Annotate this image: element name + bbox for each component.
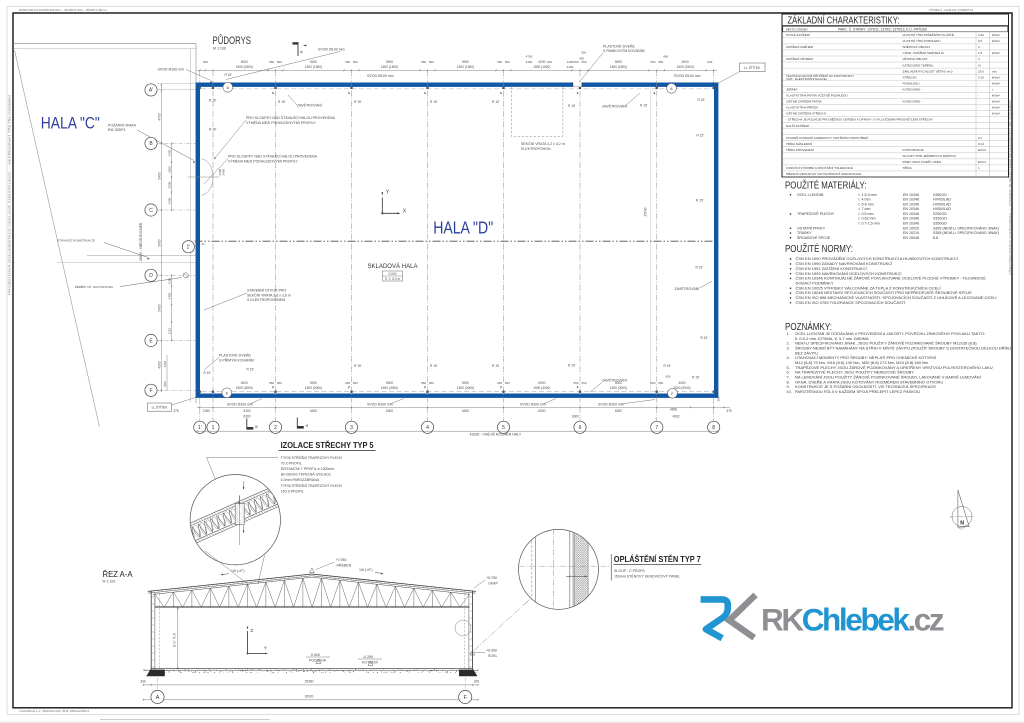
svg-text:kN/m²: kN/m² — [992, 100, 1000, 104]
svg-text:ŘEZ A-A: ŘEZ A-A — [103, 569, 133, 579]
svg-text:+0.300: +0.300 — [486, 648, 497, 652]
svg-text:VÝMĚNA MEZI PODHLEDOVÝMI PROFI: VÝMĚNA MEZI PODHLEDOVÝMI PROFILY — [246, 120, 316, 125]
svg-text:EN 10346: EN 10346 — [903, 193, 919, 197]
svg-text:375: 375 — [726, 409, 732, 413]
svg-text:26020: 26020 — [305, 694, 314, 698]
svg-text:-: - — [978, 100, 979, 104]
svg-text:t. 7 mm: t. 7 mm — [859, 207, 871, 211]
svg-text:ZÁKLADNÍ CHARAKTERISTIKY:: ZÁKLADNÍ CHARAKTERISTIKY: — [788, 13, 900, 26]
svg-text:OPLÁŠTĚNÍ STĚN TYP 7: OPLÁŠTĚNÍ STĚN TYP 7 — [614, 553, 701, 564]
svg-text:t. 5-6 mm: t. 5-6 mm — [859, 202, 874, 206]
svg-text:M 1:100: M 1:100 — [213, 47, 226, 51]
svg-text:POUŽITÉ MATERIÁLY:: POUŽITÉ MATERIÁLY: — [785, 178, 867, 191]
svg-text:FUNKČNÍ VÝROBNÍ A MONTÁŽNÍ TOL: FUNKČNÍ VÝROBNÍ A MONTÁŽNÍ TOLERANCE — [786, 165, 853, 170]
svg-text:NOSNÁ OCELOVÁ KONSTRUKCE HALY: NOSNÁ OCELOVÁ KONSTRUKCE HALY — SKLADOVÁ… — [19, 9, 107, 12]
svg-text:PRO SLOUPKY NAD STÁVAJÍCÍ HALO: PRO SLOUPKY NAD STÁVAJÍCÍ HALOU PROVEDEN… — [246, 116, 336, 120]
svg-text:SLOUP - C PROFIL: SLOUP - C PROFIL — [614, 569, 645, 573]
svg-text:650: 650 — [421, 60, 426, 64]
svg-text:PLASTOVÉ DVEŘE: PLASTOVÉ DVEŘE — [603, 43, 636, 48]
svg-text:70 Z-PROFIL: 70 Z-PROFIL — [281, 462, 302, 466]
svg-text:R 15': R 15' — [697, 134, 705, 138]
svg-text:0.000: 0.000 — [389, 272, 397, 276]
svg-text:D: D — [149, 273, 153, 279]
svg-text:5000: 5000 — [310, 381, 317, 385]
svg-text:0.3mm PAROZÁBRANA: 0.3mm PAROZÁBRANA — [281, 478, 320, 482]
svg-text:25360: 25360 — [305, 680, 314, 684]
svg-text:EW 30DP1: EW 30DP1 — [108, 128, 126, 132]
svg-text:5000: 5000 — [386, 60, 393, 64]
svg-text:EN 10219: EN 10219 — [903, 231, 919, 235]
svg-text:5000: 5000 — [386, 381, 393, 385]
svg-text:S.V.: 5 m: S.V.: 5 m — [172, 633, 176, 647]
svg-text:4300: 4300 — [526, 60, 533, 64]
svg-text:330: 330 — [140, 680, 146, 684]
svg-text:5400: 5400 — [157, 304, 161, 311]
svg-text:4000: 4000 — [241, 381, 248, 385]
svg-text:PŘESNÁ ODOLNOST VIZ TECHNICKÁ: PŘESNÁ ODOLNOST VIZ TECHNICKÁ SPECIFIKAC… — [786, 171, 861, 176]
svg-text:650: 650 — [505, 381, 510, 385]
svg-text:ZATÍŽENÍ VĚTREM: ZATÍŽENÍ VĚTREM — [786, 56, 813, 61]
svg-text:650: 650 — [497, 381, 502, 385]
svg-text:SVOD Ø100 mm: SVOD Ø100 mm — [367, 74, 394, 78]
svg-text:3400: 3400 — [222, 168, 226, 175]
svg-text:VĚTRNÁ OBLAST: VĚTRNÁ OBLAST — [903, 56, 928, 61]
svg-text:650: 650 — [581, 381, 586, 385]
svg-text:EN 10025: EN 10025 — [903, 226, 919, 230]
svg-text:t. 4 mm: t. 4 mm — [859, 198, 871, 202]
svg-text:VLASTNÍ TÍHA PATRA VČETNĚ PODH: VLASTNÍ TÍHA PATRA VČETNĚ PODHLEDU — [786, 93, 848, 98]
svg-text:S350GD: S350GD — [933, 221, 947, 225]
svg-text:R 15': R 15' — [664, 364, 672, 368]
svg-text:VLASTNÍ TÍHA PŘÍČEK: VLASTNÍ TÍHA PŘÍČEK — [786, 105, 818, 110]
svg-text:PŮDORYS: PŮDORYS — [213, 34, 252, 47]
svg-text:(VZT., ELEKTROINSTALACE): (VZT., ELEKTROINSTALACE) — [786, 77, 827, 81]
svg-text:1500 (3000): 1500 (3000) — [381, 386, 398, 390]
svg-text:8: 8 — [712, 425, 715, 431]
svg-text:EXC2: EXC2 — [978, 148, 986, 152]
svg-text:HX500LAD: HX500LAD — [933, 202, 951, 206]
svg-text:4696: 4696 — [670, 408, 677, 412]
svg-text:8.8: 8.8 — [933, 236, 938, 240]
svg-text:S350GD: S350GD — [933, 193, 947, 197]
svg-text:SLOUPY POD JEŘÁBOVOU DRÁHOU: SLOUPY POD JEŘÁBOVOU DRÁHOU — [903, 153, 956, 158]
svg-text:6300: 6300 — [572, 414, 579, 418]
svg-text:5400: 5400 — [157, 172, 161, 179]
svg-text:VÝKRES Č. 1-2034-101 | FORMÁT: VÝKRES Č. 1-2034-101 | FORMÁT A1 — [929, 9, 974, 12]
svg-text:650: 650 — [277, 60, 282, 64]
svg-text:650: 650 — [658, 60, 663, 64]
svg-text:VLASTNÍ TÍHA PODHLEDU: VLASTNÍ TÍHA PODHLEDU — [903, 39, 941, 43]
svg-text:5000: 5000 — [615, 60, 622, 64]
svg-text:PARC. Č. STAVBY: 1379/11, 1379: PARC. Č. STAVBY: 1379/11, 1379/2, 1379/1… — [838, 26, 928, 31]
svg-text:S. V. 5.0 m: S. V. 5.0 m — [385, 277, 401, 281]
svg-text:R 15': R 15' — [696, 266, 704, 270]
svg-text:RKChlebek.cz: RKChlebek.cz — [761, 602, 944, 638]
svg-text:26920 - VNĚJŠÍ ROZMĚR: 26920 - VNĚJŠÍ ROZMĚR — [138, 222, 143, 261]
svg-text:R 15': R 15' — [354, 364, 362, 368]
svg-text:1: 1 — [212, 425, 215, 431]
svg-text:Z: Z — [251, 628, 254, 633]
svg-text:TRAPÉZOVÉ PLECHY: TRAPÉZOVÉ PLECHY — [797, 211, 835, 216]
svg-text:II: II — [978, 57, 980, 61]
svg-text:1/6 (≈9°): 1/6 (≈9°) — [359, 568, 373, 572]
svg-text:CHAR. ZATÍŽENÍ SNĚHEM sk: CHAR. ZATÍŽENÍ SNĚHEM sk — [903, 50, 945, 55]
svg-text:6300: 6300 — [615, 409, 622, 413]
svg-text:1500 (3000): 1500 (3000) — [457, 386, 474, 390]
svg-text:TŘÍDA: TŘÍDA — [903, 165, 913, 170]
svg-text:1500 (3000): 1500 (3000) — [305, 386, 322, 390]
svg-text:R 15': R 15' — [568, 104, 576, 108]
svg-text:1.5: 1.5 — [978, 51, 983, 55]
svg-text:SVOD Ø100 mm: SVOD Ø100 mm — [520, 403, 546, 407]
svg-text:A: A — [304, 424, 309, 427]
svg-text:43635 - VNĚJŠÍ ROZMĚR HALY: 43635 - VNĚJŠÍ ROZMĚR HALY — [470, 431, 522, 436]
svg-text:KONSTRUKCE: KONSTRUKCE — [903, 148, 924, 152]
svg-text:B: B — [254, 425, 259, 428]
svg-text:5000: 5000 — [462, 60, 469, 64]
svg-text:R 15': R 15' — [225, 73, 233, 77]
svg-text:6300: 6300 — [386, 409, 393, 413]
svg-text:-: - — [978, 106, 979, 110]
svg-text:A: A — [156, 695, 160, 701]
svg-text:SOKL: SOKL — [488, 654, 497, 658]
svg-text:ŠROUBY NESMÍ BÝT NAMÁHÁNY NA S: ŠROUBY NESMÍ BÝT NAMÁHÁNY NA STŘIH V MÍS… — [795, 346, 1013, 351]
svg-text:4962: 4962 — [672, 414, 679, 418]
svg-text:5400: 5400 — [157, 239, 161, 246]
svg-text:2110: 2110 — [163, 360, 167, 367]
svg-text:1500 (1500): 1500 (1500) — [533, 65, 550, 69]
svg-text:329: 329 — [474, 680, 480, 684]
svg-text:EN 10346: EN 10346 — [903, 202, 919, 206]
svg-text:1500 (3000): 1500 (3000) — [236, 386, 253, 390]
svg-text:STŘECHY: STŘECHY — [903, 74, 918, 79]
svg-text:STÁLÉ ZATÍŽENÍ: STÁLÉ ZATÍŽENÍ — [786, 32, 810, 37]
svg-text:1100: 1100 — [167, 277, 171, 284]
svg-text:SVOD Ø100 mm: SVOD Ø100 mm — [318, 48, 345, 52]
svg-text:UŽITNÉ ZATÍŽENÍ STŘECHY: UŽITNÉ ZATÍŽENÍ STŘECHY — [786, 111, 827, 116]
svg-text:N: N — [960, 521, 964, 527]
svg-text:OKAP: OKAP — [488, 581, 498, 585]
svg-text:A: A — [299, 50, 304, 53]
svg-text:5100: 5100 — [243, 409, 250, 413]
svg-text:650: 650 — [353, 60, 358, 64]
svg-text:S PŘÍMÝM KOVÁNÍM: S PŘÍMÝM KOVÁNÍM — [219, 357, 254, 362]
svg-text:2500: 2500 — [167, 166, 171, 173]
svg-text:R 15': R 15' — [492, 364, 500, 368]
svg-text:-0.200: -0.200 — [363, 655, 373, 659]
svg-text:0.32: 0.32 — [978, 33, 984, 37]
svg-text:S355 (NENÍ-LI SPECIFIKOVÁNO JI: S355 (NENÍ-LI SPECIFIKOVÁNO JINAK) — [933, 231, 999, 235]
svg-text:S PANIKOVÝM KOVÁNÍM: S PANIKOVÝM KOVÁNÍM — [603, 49, 645, 53]
svg-text:kN/m²: kN/m² — [992, 94, 1000, 98]
svg-text:650: 650 — [277, 381, 282, 385]
svg-text:ZAVĚTROVÁNÍ: ZAVĚTROVÁNÍ — [602, 104, 627, 109]
svg-text:STUPEŇ KOROZNÍ AGRESIVITY VNIT: STUPEŇ KOROZNÍ AGRESIVITY VNITŘNÍHO PROS… — [786, 135, 868, 140]
svg-text:375: 375 — [173, 409, 179, 413]
svg-text:1500 (3000): 1500 (3000) — [610, 386, 627, 390]
svg-text:7: 7 — [655, 425, 658, 431]
svg-text:1.: 1. — [787, 331, 790, 336]
svg-text:VÝMĚNA MEZI PODHLEDOVÝMI PROFI: VÝMĚNA MEZI PODHLEDOVÝMI PROFILY — [228, 158, 298, 163]
svg-text:VLASTNÍ TÍHA STŘEŠNÍHO PLÁŠTĚ: VLASTNÍ TÍHA STŘEŠNÍHO PLÁŠTĚ — [903, 32, 954, 37]
svg-text:LL ŠTÍTEK: LL ŠTÍTEK — [744, 65, 761, 70]
svg-text:200: 200 — [547, 60, 552, 64]
svg-text:kN/m²: kN/m² — [992, 75, 1000, 79]
svg-text:2110: 2110 — [167, 327, 171, 334]
svg-text:650: 650 — [345, 60, 350, 64]
svg-text:SVOD Ø100 mm: SVOD Ø100 mm — [598, 403, 624, 407]
svg-text:ELEKTROPOHON: ELEKTROPOHON — [521, 147, 551, 151]
svg-text:kN/m²: kN/m² — [992, 33, 1000, 37]
svg-text:R 15': R 15' — [204, 371, 212, 375]
svg-text:R 15': R 15' — [354, 100, 362, 104]
svg-text:5000: 5000 — [615, 381, 622, 385]
svg-text:25.0: 25.0 — [978, 69, 984, 73]
svg-text:HX500LAD: HX500LAD — [933, 207, 951, 211]
svg-text:650: 650 — [573, 60, 578, 64]
svg-text:SVOD Ø100 mm: SVOD Ø100 mm — [227, 403, 253, 407]
svg-text:VŠECHNA PRÁVA VYHRAZENA — VÝKR: VŠECHNA PRÁVA VYHRAZENA — VÝKRES JE MAJE… — [1009, 99, 1012, 275]
svg-text:ZÁKLADNÍ RYCHLOST VĚTRU vb,0: ZÁKLADNÍ RYCHLOST VĚTRU vb,0 — [903, 68, 953, 73]
svg-text:F: F — [149, 388, 152, 394]
svg-text:HALA "D": HALA "D" — [433, 218, 493, 238]
svg-text:LL ŠTÍTEK: LL ŠTÍTEK — [152, 405, 169, 410]
svg-text:M 1:100: M 1:100 — [103, 580, 116, 584]
svg-text:6300: 6300 — [462, 409, 469, 413]
svg-text:1500 (1500): 1500 (1500) — [610, 65, 627, 69]
svg-text:-: - — [978, 112, 979, 116]
svg-text:80-200mm TEPELNÁ IZOLACE: 80-200mm TEPELNÁ IZOLACE — [281, 473, 332, 477]
svg-text:6300: 6300 — [310, 409, 317, 413]
svg-text:0.10: 0.10 — [978, 75, 984, 79]
svg-text:1060: 1060 — [203, 409, 210, 413]
svg-text:IZOLACE STŘECHY TYP 5: IZOLACE STŘECHY TYP 5 — [281, 439, 374, 450]
svg-text:SEKČNÍ VRATA 4,2 x 4,2 m: SEKČNÍ VRATA 4,2 x 4,2 m — [521, 141, 565, 146]
svg-text:6300: 6300 — [243, 414, 250, 418]
svg-text:4700: 4700 — [526, 55, 533, 59]
svg-text:450: 450 — [665, 375, 670, 379]
svg-text:1': 1' — [187, 245, 191, 251]
svg-text:0.000: 0.000 — [311, 653, 320, 657]
svg-text:TŘÍDA PROVEDENÍ: TŘÍDA PROVEDENÍ — [786, 147, 814, 152]
svg-text:PODHLEDU: PODHLEDU — [903, 81, 920, 85]
svg-text:PLASTOVÉ DVEŘE: PLASTOVÉ DVEŘE — [219, 353, 252, 358]
svg-text:4: 4 — [426, 425, 429, 431]
svg-text:SKLADOVÁ HALA: SKLADOVÁ HALA — [368, 261, 419, 270]
svg-text:S ELEKTROPOHONEM: S ELEKTROPOHONEM — [247, 298, 285, 302]
svg-text:HALA "C": HALA "C" — [41, 114, 100, 133]
svg-text:DALŠÍ ZATÍŽENÍ: ...: DALŠÍ ZATÍŽENÍ: ... — [786, 123, 813, 128]
svg-text:1500 (1500): 1500 (1500) — [457, 65, 474, 69]
svg-text:R 15': R 15' — [209, 99, 217, 103]
svg-text:KATEGORIE: -: KATEGORIE: - — [903, 100, 923, 104]
svg-text:S320GD: S320GD — [933, 217, 947, 221]
svg-text:650: 650 — [345, 381, 350, 385]
svg-text:ZAVĚTROVÁNÍ: ZAVĚTROVÁNÍ — [297, 103, 322, 108]
svg-text:4700: 4700 — [157, 113, 161, 120]
svg-text:t. 0.63 mm: t. 0.63 mm — [859, 217, 876, 221]
svg-text:-: - — [978, 94, 979, 98]
svg-text:TŘÍDA NÁSLEDKŮ: TŘÍDA NÁSLEDKŮ — [786, 141, 812, 146]
svg-text:1500 (1500): 1500 (1500) — [305, 65, 322, 69]
svg-text:R 15': R 15' — [247, 368, 255, 372]
svg-text:650: 650 — [429, 60, 434, 64]
svg-text:R 15': R 15' — [640, 104, 648, 108]
svg-text:R 15': R 15' — [430, 100, 438, 104]
svg-text:3.: 3. — [787, 346, 790, 351]
svg-text:+7.950: +7.950 — [336, 558, 347, 562]
svg-text:1500 (3000): 1500 (3000) — [533, 386, 550, 390]
svg-text:RÁMY VRAT, DVEŘÍ, OKEN: RÁMY VRAT, DVEŘÍ, OKEN — [903, 159, 942, 164]
svg-text:R 15': R 15' — [701, 336, 709, 340]
svg-text:POŽÁRNÍ VRATA: POŽÁRNÍ VRATA — [108, 123, 137, 128]
svg-text:4000: 4000 — [678, 381, 685, 385]
svg-text:400: 400 — [663, 55, 668, 59]
svg-text:HX420LAD: HX420LAD — [933, 198, 951, 202]
svg-text:25040: 25040 — [644, 207, 648, 216]
svg-text:C1: C1 — [978, 136, 982, 140]
svg-text:4200: 4200 — [538, 60, 545, 64]
svg-text:2: 2 — [274, 425, 277, 431]
svg-text:4300: 4300 — [157, 361, 161, 368]
svg-text:POUŽITÉ NORMY:: POUŽITÉ NORMY: — [785, 242, 853, 255]
svg-text:SVOD Ø100 mm: SVOD Ø100 mm — [158, 68, 185, 72]
svg-text:3: 3 — [350, 425, 353, 431]
svg-text:Y: Y — [264, 646, 267, 651]
svg-text:940: 940 — [707, 60, 712, 64]
svg-text:kN/m²: kN/m² — [992, 81, 1000, 85]
svg-text:TYP/6 STŘEŠNÍ TRAPÉZOVÝ PLECH: TYP/6 STŘEŠNÍ TRAPÉZOVÝ PLECH — [281, 483, 343, 488]
svg-text:1500 (1500): 1500 (1500) — [677, 65, 694, 69]
svg-text:650: 650 — [269, 381, 274, 385]
svg-text:t. 0.5 mm: t. 0.5 mm — [859, 212, 874, 216]
svg-text:t. 1.5-3 mm: t. 1.5-3 mm — [859, 193, 877, 197]
svg-text:200: 200 — [717, 396, 721, 401]
svg-text:5000: 5000 — [538, 381, 545, 385]
svg-text:R 15': R 15' — [568, 364, 576, 368]
svg-text:t. 0.7-1.5 mm: t. 0.7-1.5 mm — [859, 221, 880, 225]
svg-text:650: 650 — [650, 381, 655, 385]
svg-text:1400: 1400 — [167, 197, 171, 204]
svg-text:800: 800 — [163, 381, 167, 386]
svg-text:ŠROUBOVÉ SPOJE: ŠROUBOVÉ SPOJE — [797, 235, 831, 240]
svg-text:5000: 5000 — [310, 60, 317, 64]
svg-text:III: III — [978, 63, 981, 67]
svg-text:HŘEBEN: HŘEBEN — [337, 562, 352, 567]
svg-text:6300: 6300 — [538, 409, 545, 413]
svg-text:R 15': R 15' — [696, 199, 704, 203]
svg-text:4.: 4. — [787, 355, 790, 360]
svg-text:6: 6 — [579, 425, 582, 431]
svg-text:EN 10346: EN 10346 — [903, 207, 919, 211]
svg-text:ŽEBŘÍK VČ. SUCHOVODU: ŽEBŘÍK VČ. SUCHOVODU — [75, 284, 113, 289]
svg-text:ČSN EN ISO 4759 TOLERANCE SPOJ: ČSN EN ISO 4759 TOLERANCE SPOJOVACÍCH SO… — [796, 300, 906, 305]
svg-text:5000: 5000 — [241, 60, 248, 64]
svg-text:41: 41 — [202, 242, 206, 246]
svg-text:© LLENTAB spol. s r.o. | TŘANO: © LLENTAB spol. s r.o. | TŘANOVICE 1163 … — [19, 710, 89, 713]
svg-text:C: C — [149, 208, 153, 214]
svg-text:SVOD Ø100 mm: SVOD Ø100 mm — [367, 403, 393, 407]
svg-text:SNĚHOVÁ OBLAST: SNĚHOVÁ OBLAST — [903, 44, 931, 49]
svg-text:650: 650 — [497, 60, 502, 64]
svg-text:150 Z-PROFIL: 150 Z-PROFIL — [281, 489, 304, 493]
svg-text:1500 (1500): 1500 (1500) — [236, 65, 253, 69]
svg-text:SEKČNÍ VRATA 3,6 x 3,6 m: SEKČNÍ VRATA 3,6 x 3,6 m — [247, 292, 291, 297]
svg-text:kN/m²: kN/m² — [992, 51, 1000, 55]
svg-text:5: 5 — [502, 425, 505, 431]
svg-text:DISTANČNÍ 'I' PROFIL á 1200mm: DISTANČNÍ 'I' PROFIL á 1200mm — [281, 466, 335, 471]
svg-text:ZAVĚTROVÁNÍ: ZAVĚTROVÁNÍ — [675, 286, 700, 291]
svg-text:450: 450 — [579, 57, 584, 61]
svg-text:1400: 1400 — [167, 149, 171, 156]
svg-text:TYP/6 STŘEŠNÍ TRAPÉZOVÝ PLECH: TYP/6 STŘEŠNÍ TRAPÉZOVÝ PLECH — [281, 455, 343, 460]
svg-text:S250GD: S250GD — [933, 212, 947, 216]
svg-text:kN/m²: kN/m² — [992, 106, 1000, 110]
svg-text:10.: 10. — [787, 389, 792, 394]
svg-text:A': A' — [149, 88, 153, 94]
svg-text:650: 650 — [650, 60, 655, 64]
svg-text:+5.750: +5.750 — [486, 576, 497, 580]
svg-text:EN 15048: EN 15048 — [903, 236, 919, 240]
svg-text:1: 1 — [978, 166, 980, 170]
svg-text:OCEL LLENTAB: OCEL LLENTAB — [797, 193, 824, 197]
svg-text:650: 650 — [429, 381, 434, 385]
svg-text:PROJEKTOVÁ DOKUMENTACE OCELOVÉ: PROJEKTOVÁ DOKUMENTACE OCELOVÉ KONSTRUKC… — [9, 95, 12, 295]
svg-text:KATEGORIE: -: KATEGORIE: - — [903, 87, 923, 91]
svg-text:650: 650 — [658, 381, 663, 385]
svg-text:m/s: m/s — [992, 69, 997, 73]
svg-text:II: II — [978, 45, 980, 49]
svg-text:2100: 2100 — [567, 65, 574, 69]
svg-text:650: 650 — [421, 381, 426, 385]
svg-text:EN 10346: EN 10346 — [903, 221, 919, 225]
svg-text:KATEGORIE TERÉNU: KATEGORIE TERÉNU — [903, 62, 934, 67]
svg-text:UŽITNÉ ZATÍŽENÍ PATRA: UŽITNÉ ZATÍŽENÍ PATRA — [786, 99, 823, 104]
svg-text:R 15': R 15' — [209, 128, 217, 132]
svg-text:1500 (1500): 1500 (1500) — [381, 65, 398, 69]
svg-text:-: - — [978, 81, 979, 85]
svg-text:PRO SLOUPKY NAD STÁVAJÍCÍ HALO: PRO SLOUPKY NAD STÁVAJÍCÍ HALOU PROVEDEN… — [228, 155, 318, 159]
svg-text:CC2: CC2 — [978, 142, 984, 146]
svg-text:650: 650 — [505, 60, 510, 64]
svg-text:650: 650 — [353, 381, 358, 385]
svg-text:t: t — [992, 87, 993, 91]
svg-text:1500 (3000): 1500 (3000) — [673, 386, 690, 390]
svg-text:4000: 4000 — [682, 60, 689, 64]
svg-text:650: 650 — [573, 381, 578, 385]
svg-text:MÍSTO STAVBY: MÍSTO STAVBY — [786, 27, 808, 31]
svg-text:ZATÍŽENÍ SNĚHEM: ZATÍŽENÍ SNĚHEM — [786, 44, 814, 49]
svg-text:3400: 3400 — [167, 292, 171, 299]
svg-text:EXC1: EXC1 — [978, 160, 986, 164]
svg-text:PAROTĚSNOU FÓLII V KAŽDÉM SPOJ: PAROTĚSNOU FÓLII V KAŽDÉM SPOJI PŘELEPIT… — [795, 389, 920, 394]
svg-text:S355 (NENÍ-LI SPECIFIKOVÁNO JI: S355 (NENÍ-LI SPECIFIKOVÁNO JINAK) — [933, 226, 999, 230]
svg-text:R 15': R 15' — [430, 364, 438, 368]
svg-text:650: 650 — [203, 60, 208, 64]
svg-text:SVOD Ø100 mm: SVOD Ø100 mm — [674, 74, 701, 78]
svg-text:- STŘECHA JE POCHOZÍ PRO BĚŽNO: - STŘECHA JE POCHOZÍ PRO BĚŽNOU ÚDRŽBU A… — [786, 117, 933, 122]
svg-text:JEŘÁBY: JEŘÁBY — [786, 86, 798, 91]
svg-text:1100: 1100 — [567, 60, 574, 64]
svg-text:R 15': R 15' — [692, 376, 700, 380]
svg-text:650: 650 — [269, 60, 274, 64]
svg-text:STÁVAJÍCÍ KONSTRUKCE: STÁVAJÍCÍ KONSTRUKCE — [57, 239, 95, 243]
svg-text:kN/m²: kN/m² — [992, 39, 1000, 43]
svg-text:EN 10346: EN 10346 — [903, 212, 919, 216]
svg-text:5000: 5000 — [462, 381, 469, 385]
svg-text:1/6 (≈9°): 1/6 (≈9°) — [231, 569, 245, 573]
svg-text:kN/m²: kN/m² — [992, 112, 1000, 116]
